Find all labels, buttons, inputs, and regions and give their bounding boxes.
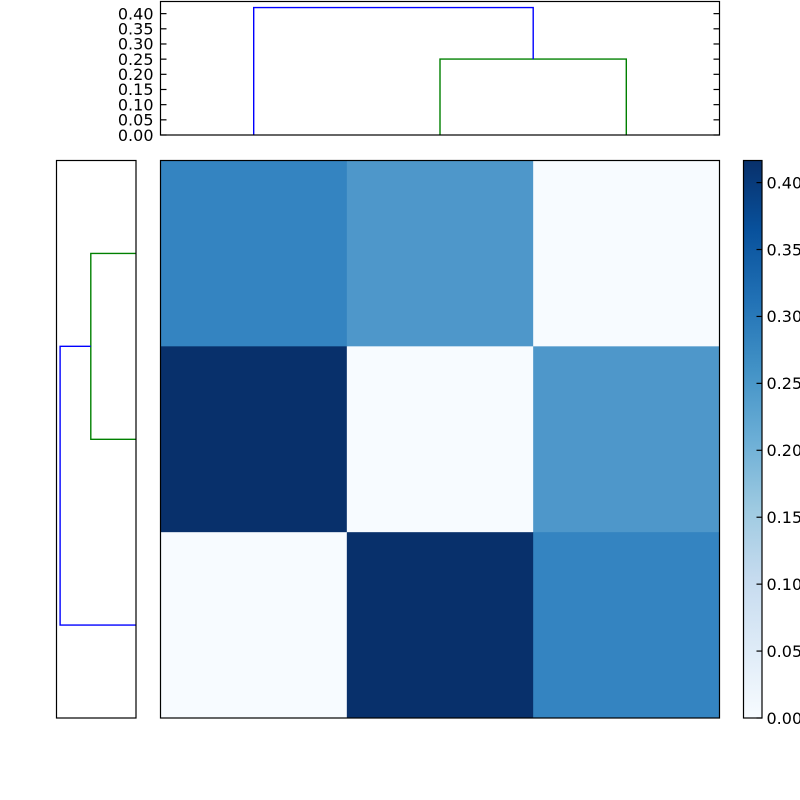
heatmap-cell-r3c3 <box>533 532 720 718</box>
heatmap-panel <box>161 161 721 719</box>
figure-canvas: 0.400.350.300.250.200.150.100.050.00 0.4… <box>0 0 800 800</box>
heatmap-cell-r3c2 <box>347 532 534 718</box>
top-dendrogram-link-1 <box>254 8 534 135</box>
clustered-heatmap-figure: 0.400.350.300.250.200.150.100.050.00 0.4… <box>0 0 800 800</box>
colorbar-tick-label: 0.15 <box>767 508 800 527</box>
colorbar-panel: 0.400.350.300.250.200.150.100.050.00 <box>744 161 800 728</box>
heatmap-cell-r2c3 <box>533 346 720 532</box>
colorbar-tick-label: 0.30 <box>767 307 800 326</box>
heatmap-cell-r1c2 <box>347 161 534 347</box>
colorbar-tick-label: 0.05 <box>767 642 800 661</box>
colorbar-tick-label: 0.20 <box>767 441 800 460</box>
top-dendrogram-panel: 0.400.350.300.250.200.150.100.050.00 <box>118 2 720 145</box>
left-dendrogram-link-1 <box>60 346 136 625</box>
heatmap-cell-r1c3 <box>533 161 720 347</box>
top-axis-tick-label: 0.00 <box>118 126 154 145</box>
colorbar-tick-label: 0.10 <box>767 575 800 594</box>
colorbar-tick-label: 0.40 <box>767 173 800 192</box>
colorbar-tick-label: 0.00 <box>767 709 800 728</box>
left-dendrogram-link-0 <box>91 253 136 439</box>
top-dendrogram-link-0 <box>440 59 626 135</box>
colorbar-tick-label: 0.35 <box>767 240 800 259</box>
heatmap-cell-r2c1 <box>161 346 348 532</box>
heatmap-cell-r2c2 <box>347 346 534 532</box>
left-dendrogram-panel <box>57 161 137 719</box>
colorbar-gradient <box>744 161 763 719</box>
heatmap-cell-r3c1 <box>161 532 348 718</box>
heatmap-cell-r1c1 <box>161 161 348 347</box>
colorbar-tick-label: 0.25 <box>767 374 800 393</box>
